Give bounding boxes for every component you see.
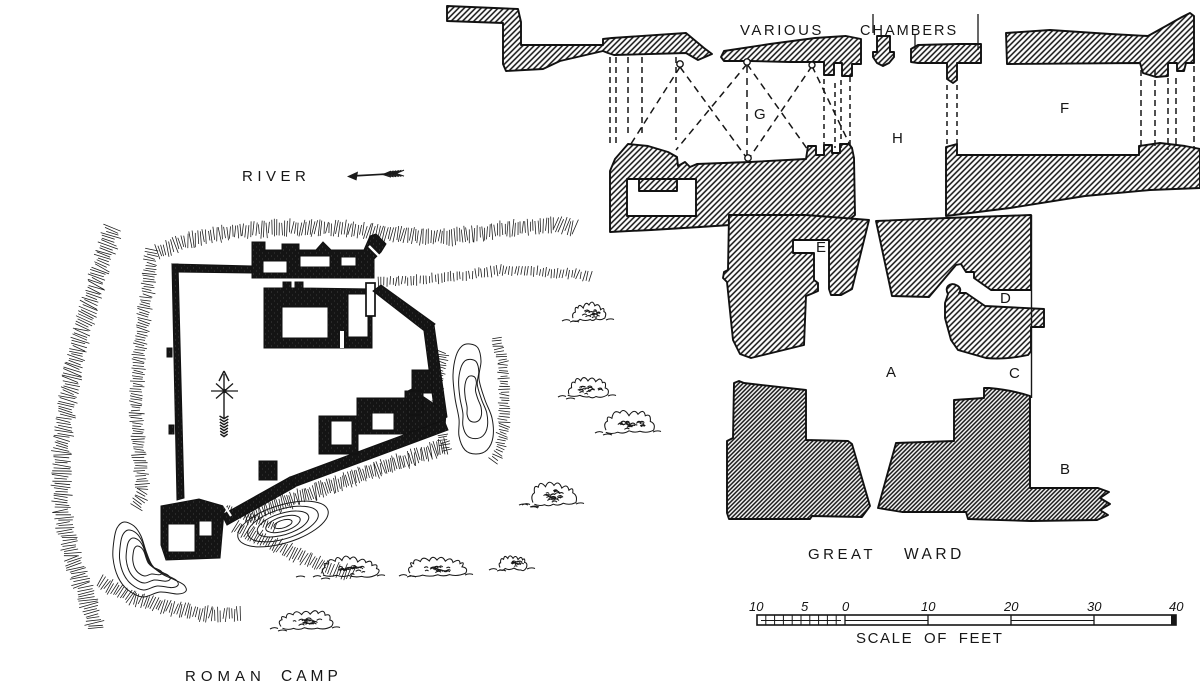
svg-text:C: C xyxy=(1009,365,1020,382)
svg-text:CAMP: CAMP xyxy=(281,668,342,684)
svg-text:A: A xyxy=(886,364,896,381)
svg-text:0: 0 xyxy=(842,599,850,614)
svg-text:SCALE OF FEET: SCALE OF FEET xyxy=(856,630,1004,647)
svg-text:30: 30 xyxy=(1087,599,1102,614)
svg-text:E: E xyxy=(816,239,826,256)
svg-text:G: G xyxy=(754,106,766,123)
svg-text:10: 10 xyxy=(921,599,936,614)
svg-text:20: 20 xyxy=(1003,599,1019,614)
svg-text:CHAMBERS: CHAMBERS xyxy=(860,23,958,39)
svg-text:RIVER: RIVER xyxy=(242,168,310,185)
svg-text:F: F xyxy=(1060,100,1069,117)
svg-text:5: 5 xyxy=(801,599,809,614)
svg-text:D: D xyxy=(1000,290,1011,307)
svg-text:B: B xyxy=(1060,461,1070,478)
svg-text:WARD: WARD xyxy=(904,546,965,563)
svg-text:40: 40 xyxy=(1169,599,1184,614)
svg-text:ROMAN: ROMAN xyxy=(185,668,266,684)
svg-text:VARIOUS: VARIOUS xyxy=(740,22,824,39)
svg-text:H: H xyxy=(892,130,903,147)
svg-text:GREAT: GREAT xyxy=(808,546,876,563)
svg-text:10: 10 xyxy=(749,599,764,614)
